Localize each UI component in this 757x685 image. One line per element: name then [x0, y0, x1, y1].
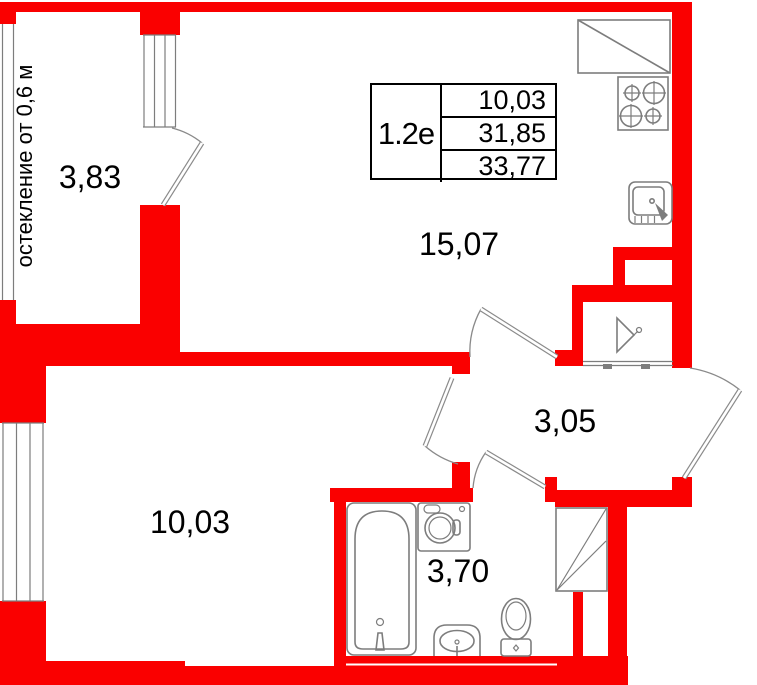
water-tap-icon [617, 318, 642, 352]
area-living-cell: 10,03 [442, 85, 555, 118]
washing-machine-icon [418, 503, 470, 551]
entry-door [684, 368, 740, 478]
area-table: 1.2е 10,03 31,85 33,77 [370, 83, 557, 180]
walls-layer [0, 2, 692, 685]
kitchen-counter-icon [578, 20, 670, 73]
room-label-hallway: 3,05 [534, 403, 596, 439]
bathroom-sink-icon [434, 625, 480, 656]
floor-plan: 3,83 15,07 10,03 3,05 3,70 остекление от… [0, 0, 757, 685]
room-label-bathroom: 3,70 [427, 553, 489, 589]
balcony-door [163, 128, 202, 205]
wardrobe-icon [556, 508, 607, 591]
unit-type-cell: 1.2е [372, 85, 442, 182]
toilet-icon [501, 599, 531, 657]
bedroom-window-icon [2, 423, 44, 601]
room-label-living-kitchen: 15,07 [419, 226, 499, 262]
bathtub-icon [347, 503, 416, 655]
kitchen-sink-icon [629, 182, 672, 224]
balcony-window-icon [143, 35, 176, 127]
room-label-bedroom: 10,03 [150, 504, 230, 540]
bedroom-door [425, 378, 458, 464]
room-label-balcony: 3,83 [59, 159, 121, 195]
shaft-partition-line [583, 362, 673, 370]
stove-icon [618, 77, 668, 130]
living-room-door [470, 309, 557, 357]
bathroom-door [473, 452, 545, 488]
area-total-cell: 31,85 [442, 118, 555, 151]
area-overall-cell: 33,77 [442, 151, 555, 182]
glazing-note-label: остекление от 0,6 м [12, 65, 37, 268]
